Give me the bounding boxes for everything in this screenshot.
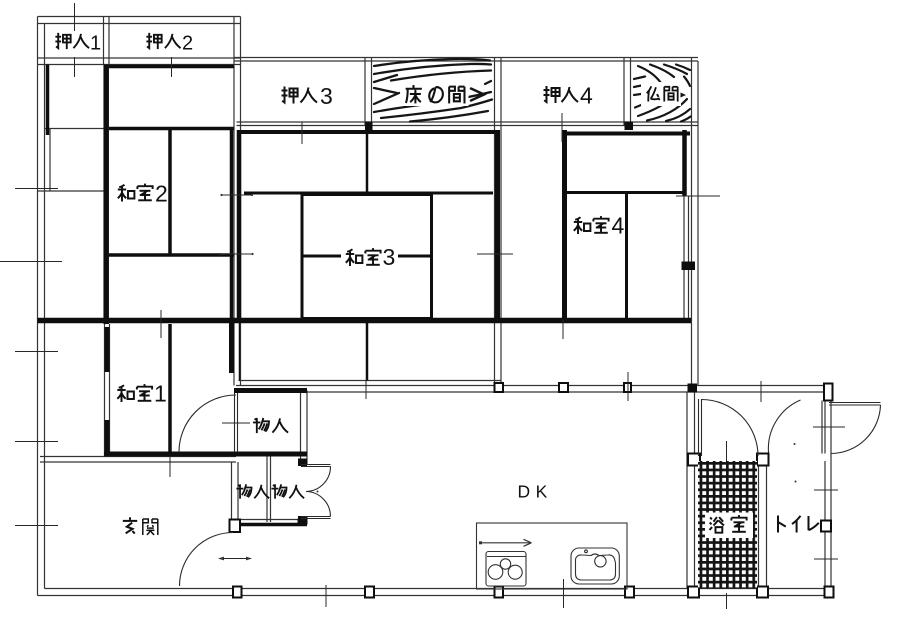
svg-text:2: 2	[182, 33, 193, 55]
svg-text:3: 3	[383, 244, 396, 270]
svg-text:3: 3	[320, 83, 333, 109]
svg-text:4: 4	[612, 213, 625, 239]
svg-text:DK: DK	[518, 482, 553, 502]
svg-text:4: 4	[580, 83, 593, 109]
svg-text:1: 1	[154, 381, 167, 407]
svg-text:2: 2	[155, 181, 168, 207]
svg-text:1: 1	[90, 33, 101, 55]
